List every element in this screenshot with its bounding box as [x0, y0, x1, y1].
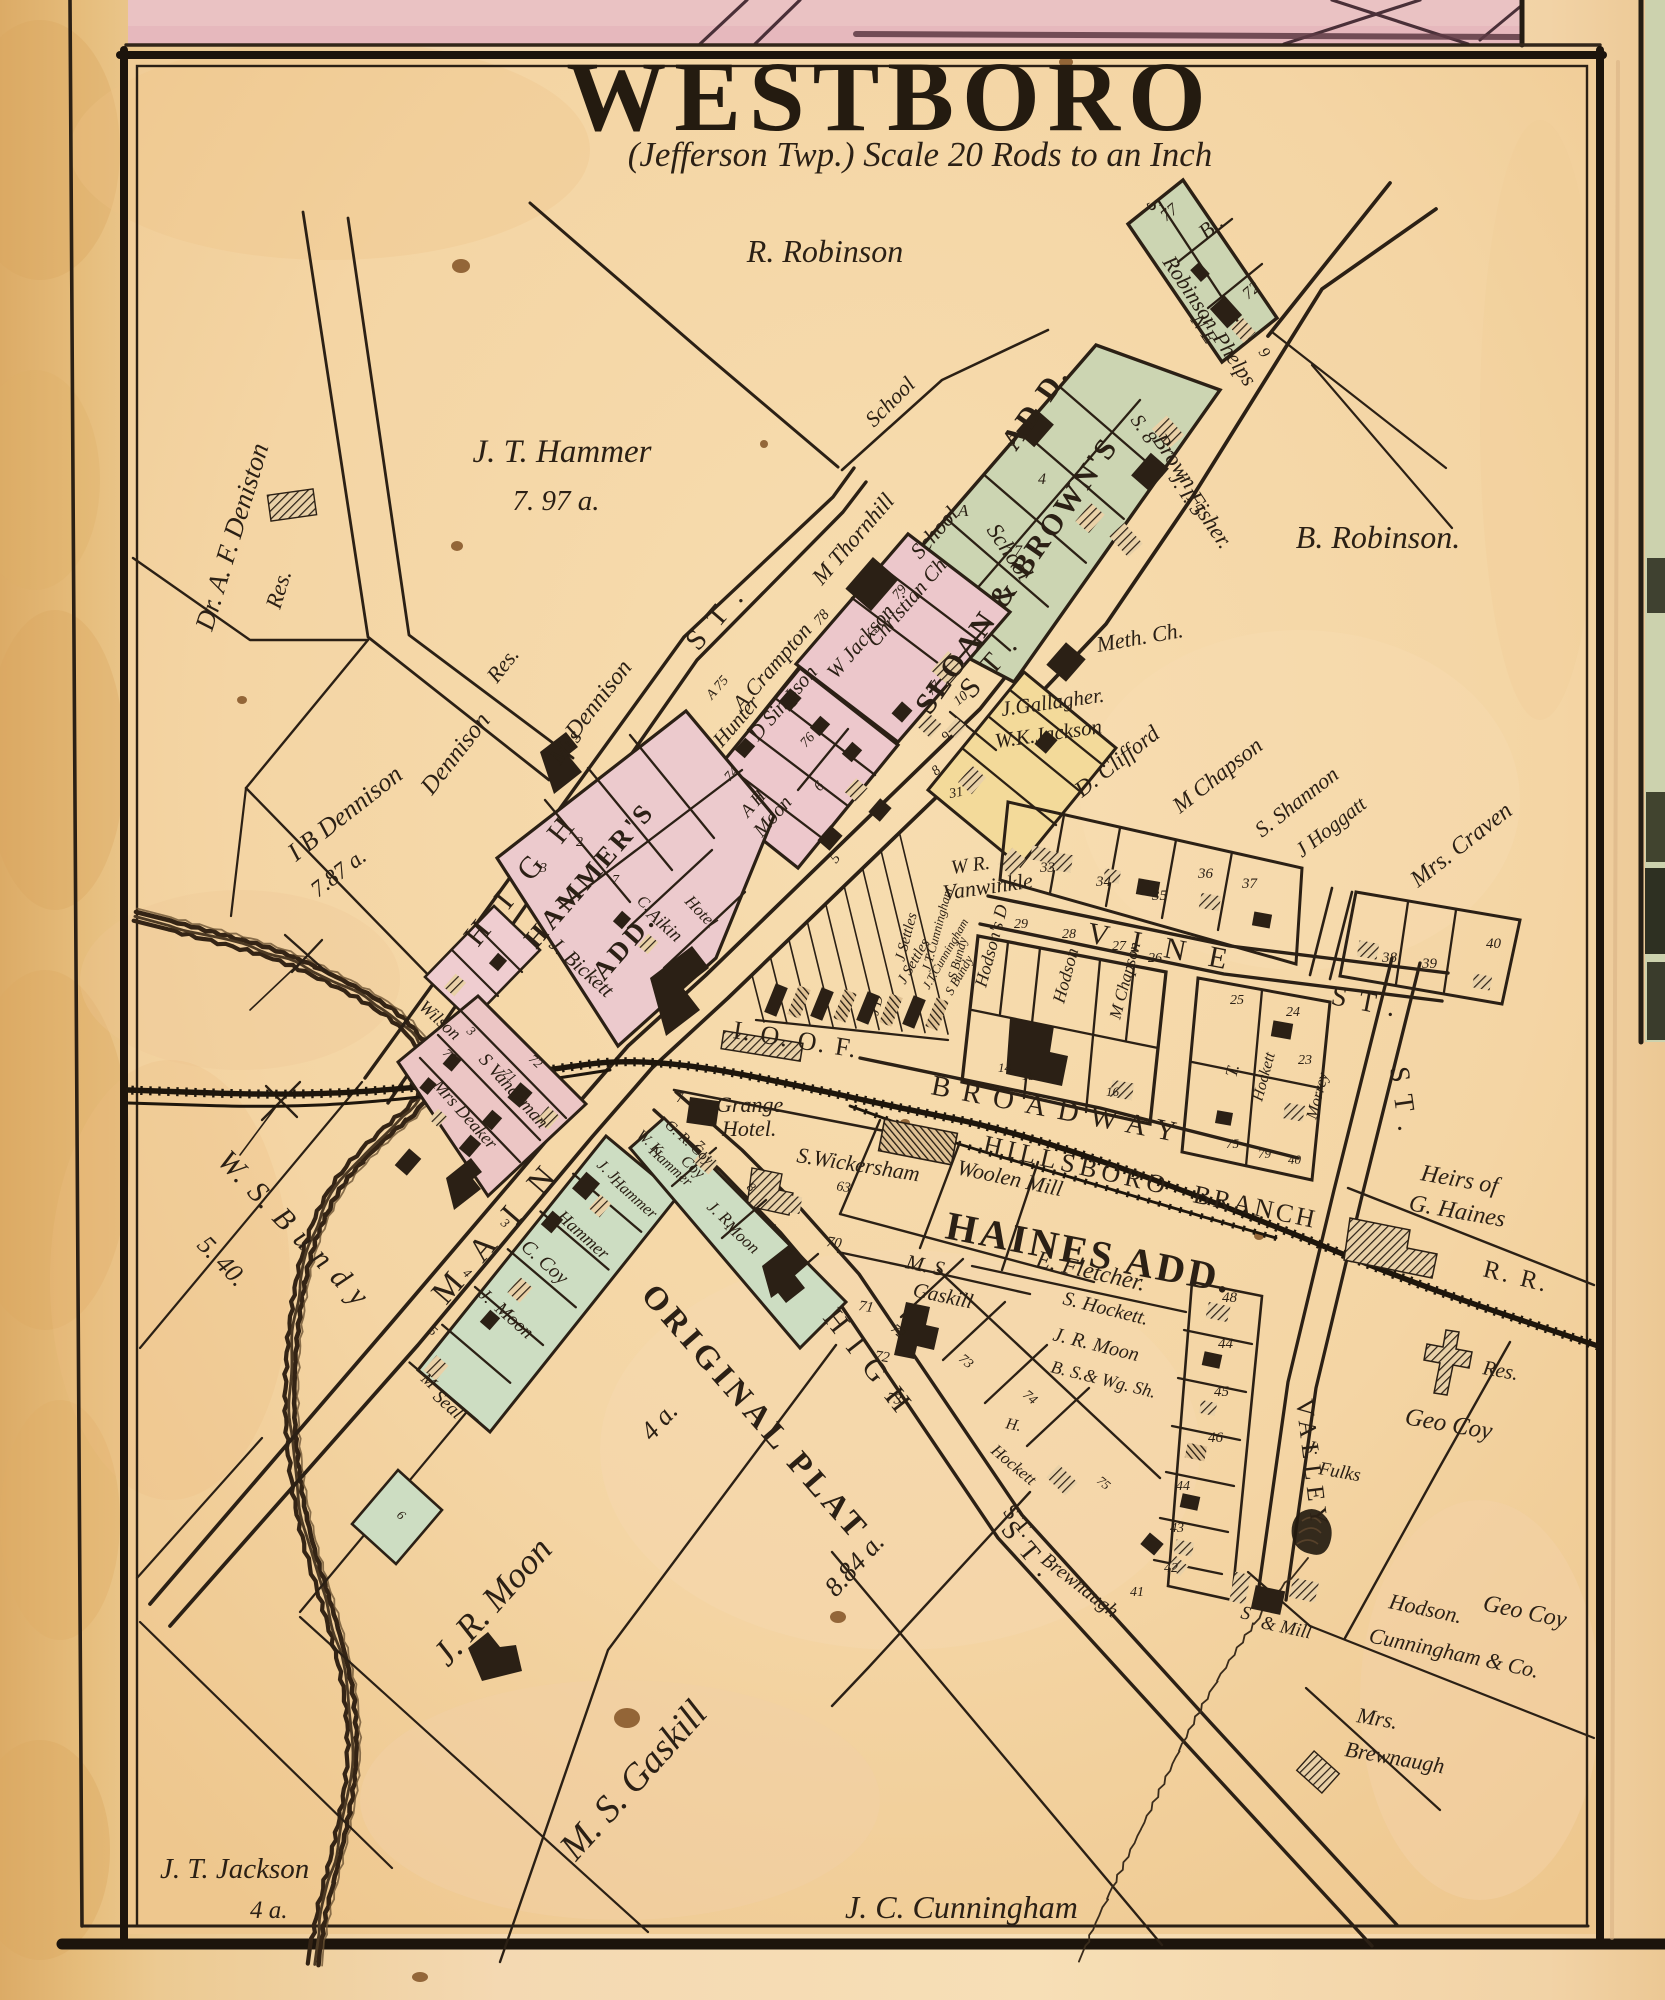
svg-text:63: 63 — [835, 1179, 851, 1196]
svg-text:40: 40 — [1486, 936, 1502, 952]
svg-text:37: 37 — [1241, 876, 1259, 892]
svg-text:71: 71 — [857, 1298, 874, 1316]
svg-text:B. Robinson.: B. Robinson. — [1296, 519, 1460, 555]
svg-text:7. 97 a.: 7. 97 a. — [513, 485, 600, 517]
svg-text:42: 42 — [1164, 1561, 1178, 1576]
svg-text:23: 23 — [1298, 1053, 1312, 1068]
svg-text:Hotel.: Hotel. — [721, 1116, 776, 1141]
svg-text:28: 28 — [1062, 927, 1076, 942]
svg-text:33: 33 — [1039, 860, 1055, 876]
svg-text:Grange: Grange — [716, 1092, 783, 1117]
svg-text:79: 79 — [1258, 1146, 1272, 1161]
svg-text:48: 48 — [1222, 1290, 1238, 1306]
svg-text:3: 3 — [1007, 433, 1016, 450]
svg-text:44: 44 — [1218, 1336, 1234, 1352]
svg-text:4: 4 — [1038, 471, 1046, 488]
svg-text:J. T. Hammer: J. T. Hammer — [472, 434, 651, 470]
svg-text:A: A — [957, 501, 969, 520]
svg-text:72: 72 — [873, 1348, 891, 1366]
svg-text:73: 73 — [885, 1390, 902, 1408]
svg-text:J. C. Cunningham: J. C. Cunningham — [845, 1889, 1078, 1925]
svg-text:26: 26 — [1148, 951, 1162, 966]
svg-text:31: 31 — [947, 785, 964, 802]
svg-text:J. T. Jackson: J. T. Jackson — [160, 1853, 309, 1885]
svg-text:R. Robinson: R. Robinson — [746, 233, 903, 269]
svg-text:7: 7 — [1014, 543, 1023, 560]
svg-text:44: 44 — [1176, 1479, 1190, 1494]
svg-text:45: 45 — [1214, 1384, 1230, 1400]
svg-text:2: 2 — [576, 835, 583, 850]
svg-text:(Jefferson Twp.) Scale 20 Rods: (Jefferson Twp.) Scale 20 Rods to an Inc… — [628, 135, 1213, 174]
svg-text:46: 46 — [1208, 1430, 1224, 1446]
svg-text:39: 39 — [1421, 956, 1438, 972]
svg-text:38: 38 — [1381, 950, 1398, 966]
svg-text:75: 75 — [1226, 1136, 1240, 1151]
svg-text:24: 24 — [1286, 1005, 1300, 1020]
svg-text:36: 36 — [1197, 866, 1214, 882]
svg-text:70: 70 — [825, 1234, 843, 1252]
svg-text:35: 35 — [1151, 888, 1168, 904]
svg-text:H.: H. — [1003, 1415, 1023, 1435]
svg-text:14: 14 — [998, 1060, 1012, 1075]
svg-text:40: 40 — [1288, 1152, 1302, 1167]
svg-text:29: 29 — [1014, 917, 1028, 932]
svg-text:7: 7 — [612, 873, 620, 888]
svg-text:34: 34 — [1095, 874, 1112, 890]
svg-text:43: 43 — [1170, 1521, 1184, 1536]
svg-text:41: 41 — [1130, 1585, 1144, 1600]
svg-text:15: 15 — [1022, 1068, 1036, 1083]
svg-text:4 a.: 4 a. — [250, 1897, 288, 1924]
svg-text:25: 25 — [1230, 993, 1244, 1008]
svg-text:3: 3 — [539, 861, 547, 876]
svg-text:16: 16 — [1106, 1084, 1120, 1099]
